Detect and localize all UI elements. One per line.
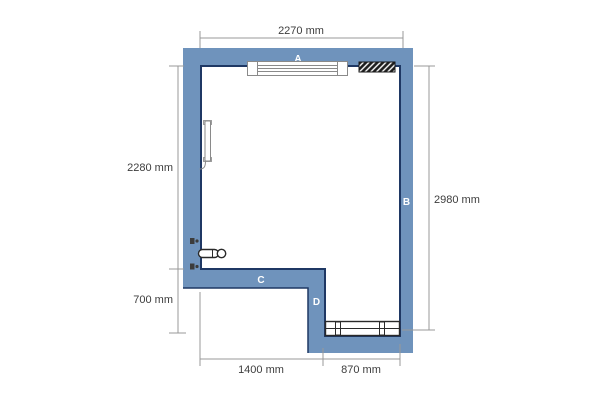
dimension-right: 2980 mm xyxy=(402,66,480,330)
wall-label-b: B xyxy=(403,197,410,208)
radiator-hatched[interactable] xyxy=(359,62,395,72)
dimension-left-upper-value: 2280 mm xyxy=(127,162,173,174)
dimension-top: 2270 mm xyxy=(200,25,403,48)
floor-plan-page: A B C D 2270 mm 2280 mm 700 mm 2980 xyxy=(0,0,600,400)
wall-label-c: C xyxy=(257,275,264,286)
room-walls[interactable] xyxy=(183,48,413,353)
dimension-left: 2280 mm 700 mm xyxy=(127,66,186,333)
dimension-right-value: 2980 mm xyxy=(434,194,480,206)
wall-inner-outline xyxy=(201,66,400,336)
dimension-bottom-left-value: 1400 mm xyxy=(238,364,284,376)
floor-plan-canvas[interactable]: A B C D 2270 mm 2280 mm 700 mm 2980 xyxy=(0,0,600,400)
wall-body[interactable] xyxy=(183,48,413,353)
wall-label-d: D xyxy=(313,297,320,308)
towel-holder[interactable] xyxy=(199,249,226,257)
dimension-top-value: 2270 mm xyxy=(278,25,324,37)
dimension-bottom-right-value: 870 mm xyxy=(341,364,381,376)
wall-notch-outline xyxy=(183,288,308,353)
bench-radiator[interactable] xyxy=(326,322,400,336)
window[interactable] xyxy=(248,62,348,76)
dimension-left-lower-value: 700 mm xyxy=(133,294,173,306)
